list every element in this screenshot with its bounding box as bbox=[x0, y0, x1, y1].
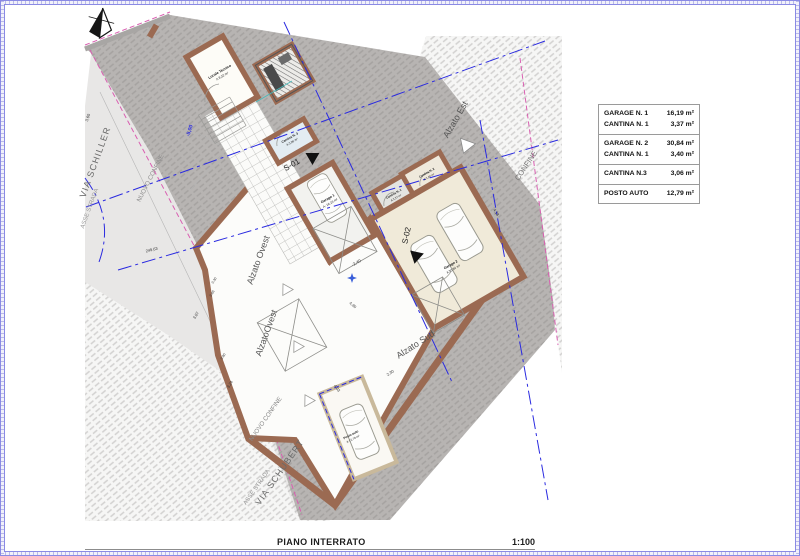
drawing-scale: 1:100 bbox=[512, 537, 535, 547]
frame-tick-strip-right bbox=[796, 1, 799, 555]
legend-value: 12,79 m² bbox=[667, 189, 694, 200]
legend-row: CANTINA N. 1 3,40 m² bbox=[604, 150, 694, 161]
legend-row: CANTINA N.3 3,06 m² bbox=[604, 169, 694, 180]
site-plan-canvas: VIA SCHILLER VIA SCHUBERT ASSE STRADA AS… bbox=[0, 0, 800, 556]
legend-row: GARAGE N. 1 16,19 m² bbox=[604, 109, 694, 120]
legend-group-4: POSTO AUTO 12,79 m² bbox=[599, 184, 699, 204]
legend-label: GARAGE N. 2 bbox=[604, 139, 648, 150]
frame-tick-strip-top bbox=[1, 1, 799, 4]
legend-value: 3,06 m² bbox=[671, 169, 694, 180]
legend-value: 16,19 m² bbox=[667, 109, 694, 120]
title-block: . PIANO INTERRATO 1:100 bbox=[85, 537, 535, 550]
legend-group-1: GARAGE N. 1 16,19 m² CANTINA N. 1 3,37 m… bbox=[599, 105, 699, 134]
legend-row: POSTO AUTO 12,79 m² bbox=[604, 189, 694, 200]
legend-group-2: GARAGE N. 2 30,84 m² CANTINA N. 1 3,40 m… bbox=[599, 134, 699, 164]
area-legend: GARAGE N. 1 16,19 m² CANTINA N. 1 3,37 m… bbox=[598, 104, 700, 204]
legend-value: 30,84 m² bbox=[667, 139, 694, 150]
legend-label: CANTINA N.3 bbox=[604, 169, 647, 180]
legend-value: 3,37 m² bbox=[671, 120, 694, 131]
legend-label: CANTINA N. 1 bbox=[604, 150, 649, 161]
legend-label: CANTINA N. 1 bbox=[604, 120, 649, 131]
legend-group-3: CANTINA N.3 3,06 m² bbox=[599, 164, 699, 184]
drawing-title: PIANO INTERRATO bbox=[277, 537, 366, 547]
legend-row: GARAGE N. 2 30,84 m² bbox=[604, 139, 694, 150]
frame-tick-strip-bottom bbox=[1, 552, 799, 555]
legend-label: GARAGE N. 1 bbox=[604, 109, 648, 120]
frame-tick-strip-left bbox=[1, 1, 4, 555]
legend-row: CANTINA N. 1 3,37 m² bbox=[604, 120, 694, 131]
legend-value: 3,40 m² bbox=[671, 150, 694, 161]
drawing-sheet: VIA SCHILLER VIA SCHUBERT ASSE STRADA AS… bbox=[0, 0, 800, 556]
legend-label: POSTO AUTO bbox=[604, 189, 648, 200]
